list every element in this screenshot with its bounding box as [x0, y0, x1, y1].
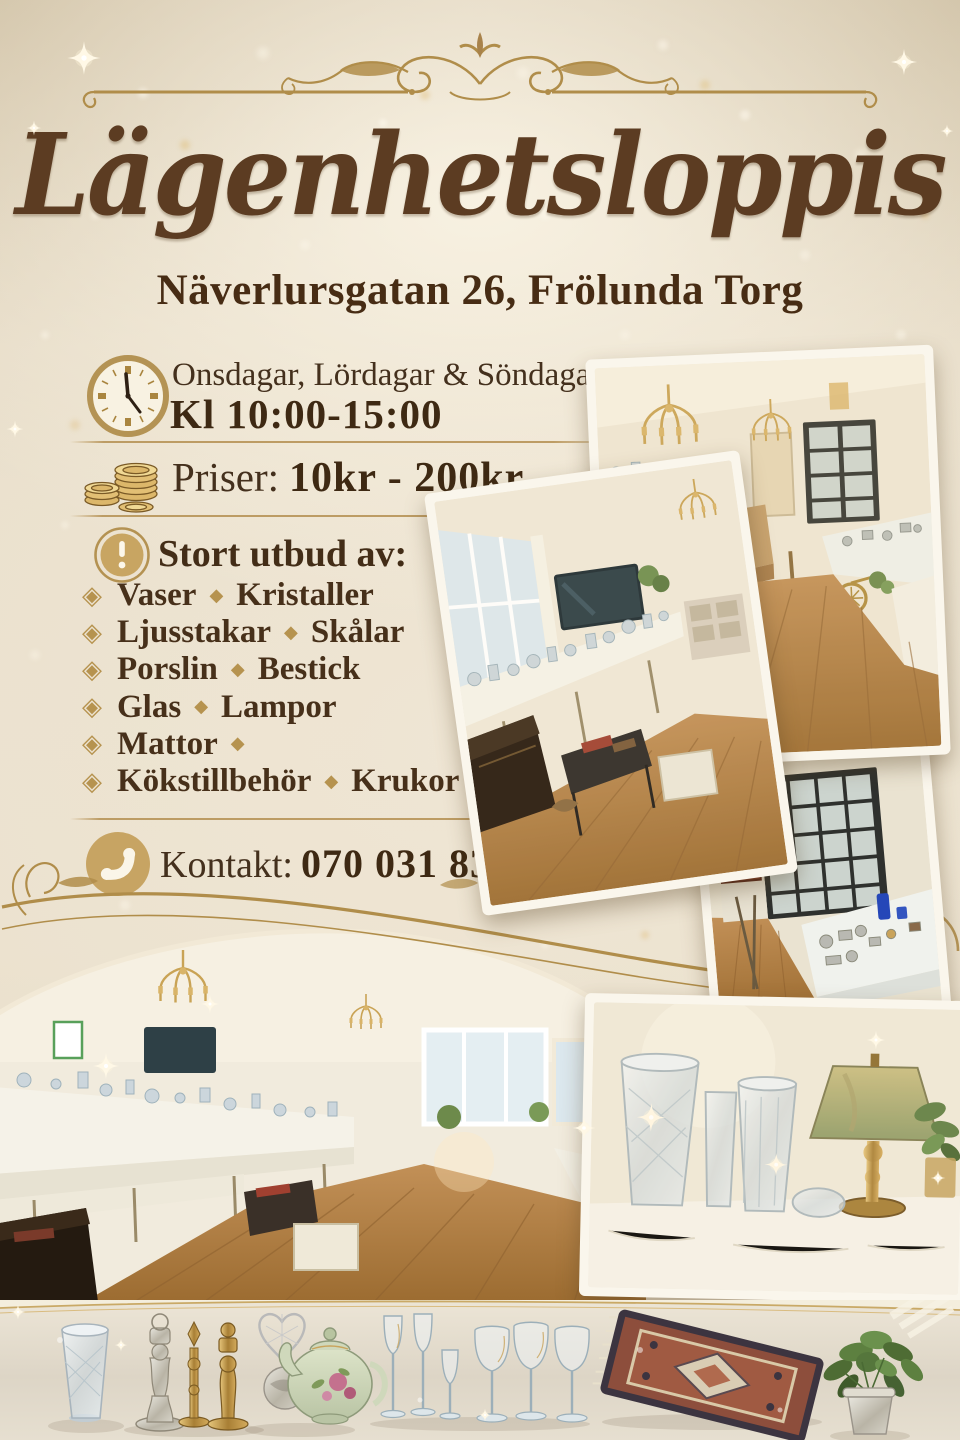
item-word: Lampor — [221, 689, 337, 726]
item-word: Kökstillbehör — [117, 763, 311, 800]
item-word: Krukor — [351, 763, 459, 800]
diamond-separator-icon: ◆ — [209, 587, 223, 605]
list-item: ◈ Vaser ◆ Kristaller — [82, 577, 459, 614]
item-word: Skålar — [311, 614, 405, 651]
divider — [70, 441, 632, 443]
item-word: Porslin — [117, 651, 218, 688]
list-item: ◈ Kökstillbehör ◆ Krukor — [82, 763, 459, 800]
assortment-heading: Stort utbud av: — [158, 532, 407, 576]
photo-interior-window — [424, 450, 798, 916]
list-item: ◈ Ljusstakar ◆ Skålar — [82, 614, 459, 651]
sparkle-star — [890, 48, 918, 76]
bokeh-sparkles-gold — [0, 0, 6, 6]
assortment-list: ◈ Vaser ◆ Kristaller ◈ Ljusstakar ◆ Skål… — [82, 577, 459, 800]
sparkle-star — [6, 420, 24, 438]
diamond-bullet-icon: ◈ — [82, 657, 102, 683]
photo-crystal-and-lamp — [579, 993, 960, 1304]
item-word: Kristaller — [236, 577, 373, 614]
schedule-days: Onsdagar, Lördagar & Söndagar — [172, 357, 601, 394]
diamond-bullet-icon: ◈ — [82, 694, 102, 720]
list-item: ◈ Mattor ◆ — [82, 726, 459, 763]
item-word: Ljusstakar — [117, 614, 271, 651]
flyer-title: Lägenhetsloppis — [0, 108, 960, 241]
diamond-bullet-icon: ◈ — [82, 769, 102, 795]
bokeh-sparkles-white — [0, 0, 6, 6]
diamond-separator-icon: ◆ — [231, 661, 245, 679]
list-item: ◈ Glas ◆ Lampor — [82, 689, 459, 726]
address-line: Näverlursgatan 26, Frölunda Torg — [0, 266, 960, 315]
photo-items-row — [0, 1300, 960, 1440]
diamond-bullet-icon: ◈ — [82, 620, 102, 646]
diamond-separator-icon: ◆ — [194, 698, 208, 716]
item-word: Bestick — [258, 651, 361, 688]
list-item: ◈ Porslin ◆ Bestick — [82, 651, 459, 688]
price-label: Priser: — [172, 454, 279, 500]
flyer-page: Lägenhetsloppis Näverlursgatan 26, Frölu… — [0, 0, 960, 1440]
diamond-bullet-icon: ◈ — [82, 583, 102, 609]
diamond-bullet-icon: ◈ — [82, 731, 102, 757]
clock-icon — [86, 354, 170, 438]
alert-icon — [93, 526, 151, 584]
diamond-separator-icon: ◆ — [324, 773, 338, 791]
top-flourish-ornament — [78, 26, 882, 120]
item-word: Mattor — [117, 726, 218, 763]
diamond-separator-icon: ◆ — [284, 624, 298, 642]
coins-icon — [80, 448, 168, 516]
item-word: Glas — [117, 689, 181, 726]
item-word: Vaser — [117, 577, 196, 614]
schedule-hours: Kl 10:00-15:00 — [170, 390, 443, 438]
diamond-separator-icon: ◆ — [231, 735, 245, 753]
